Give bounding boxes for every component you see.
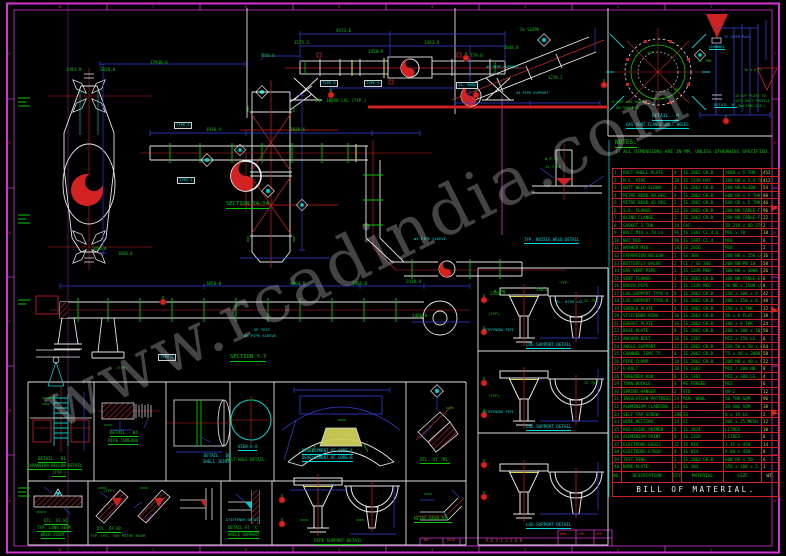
- bom-cell: 6: [673, 305, 682, 312]
- bom-row: 10NUT M1696IS 1367 CL 4M166: [613, 237, 779, 245]
- bom-cell: IS 2062 GR.B: [682, 327, 724, 334]
- bom-cell: S.O. FLANGE: [622, 207, 673, 214]
- bom-cell: 14: [673, 222, 682, 229]
- ann-top_assembly: 4573.6: [336, 29, 351, 33]
- ann-flange_detail: 45°: [674, 88, 681, 92]
- detail-b6-joint: [166, 400, 232, 452]
- bom-cell: IS 2062 GR.B: [682, 207, 724, 214]
- zone-label: 2: [617, 5, 619, 9]
- bom-cell: IS 2062 GR.B: [682, 290, 724, 297]
- bom-cell: IS 1367: [682, 365, 724, 372]
- ann-detail_cells_row2: DTL. OF W2: [97, 527, 121, 533]
- detail-b4-threads: [98, 403, 160, 432]
- bom-cell: 8: [673, 290, 682, 297]
- bom-cell: IS 2062 GR.B: [682, 320, 724, 327]
- bom-cell: 16: [673, 335, 682, 342]
- ann-lug_supports: ø THK: [494, 289, 505, 293]
- bom-cell: IS 1239 MED: [682, 267, 724, 274]
- bom-cell: INSULATION MATTRESS: [622, 395, 673, 402]
- ann-detail_cells_row2: DETAIL AT 'X': [228, 526, 259, 532]
- bom-cell: 6: [673, 184, 682, 191]
- bom-row: 6S.O. FLANGE12IS 2062 GR.B200 NB TABLE-F…: [613, 207, 779, 215]
- ann-sloped_pipe: EL. 9800: [456, 82, 478, 89]
- ann-top_assembly: EL. 10058 LVL (TYP.): [316, 99, 366, 103]
- bom-cell: IS 1367 CL 4.6: [682, 229, 724, 236]
- bom-row: 24ANGLE SUPPORT12IS 2062 GR.BISA 50 x 50…: [613, 343, 779, 351]
- bom-cell: IS 2339: [682, 433, 724, 440]
- bom-cell: 200 NB x 150 LG: [724, 252, 762, 259]
- bom-cell: 32: [762, 305, 779, 312]
- bom-cell: 96: [762, 207, 779, 214]
- bom-row: 40NAME PLATE1SS 304150 x 100 x 21: [613, 463, 779, 471]
- ann-sloped_pipe: 2% SLOPE: [520, 28, 539, 32]
- ann-flange_detail: 8 NOS ø34 HOLES: [612, 100, 646, 104]
- ann-vent_figure: IS SHIM RAIL: [724, 35, 751, 39]
- bom-cell: 42: [762, 290, 779, 297]
- bom-cell: 24: [673, 403, 682, 410]
- bom-cell: 12: [673, 441, 682, 448]
- ann-detail_cells_row1: (TYP.): [52, 471, 66, 477]
- bom-cell: ELECTRODE E6013: [622, 441, 673, 448]
- ann-nozzle_detail: W.P 2½: [545, 157, 559, 161]
- bom-cell: 96: [673, 237, 682, 244]
- ann-vessel_area: 3038.6: [290, 128, 305, 132]
- bom-cell: 21: [613, 320, 622, 327]
- bom-cell: BUTTERFLY VALVE: [622, 260, 673, 267]
- bom-cell: 27: [613, 365, 622, 372]
- bom-cell: 39: [613, 456, 622, 463]
- bom-cell: M12 x 150 LG: [724, 335, 762, 342]
- bom-row: 5MITRE BEND 45 DEG2IS 2062 GR.B600 OD x …: [613, 199, 779, 207]
- bom-cell: 4: [673, 192, 682, 199]
- ann-sloped_pipe: 1219.2: [548, 76, 562, 80]
- bom-cell: 7: [613, 214, 622, 221]
- zone-label: 4: [431, 548, 433, 552]
- bom-cell: CAF: [682, 222, 724, 229]
- ann-detail_cells_row1: BOLT HOLE DETAIL: [226, 458, 265, 462]
- ann-flange_detail: DETAIL - M: [652, 115, 679, 121]
- zone-label: F: [9, 52, 11, 56]
- ann-vent_figure: 22 THK: [698, 59, 712, 63]
- ann-revision_strip: R E V I S I O N: [486, 539, 522, 543]
- branch-duct: [234, 80, 338, 268]
- bom-cell: 12: [762, 418, 779, 425]
- zone-label: C: [9, 320, 11, 324]
- lower-duct-run: [50, 283, 470, 358]
- bom-cell: IS 2016: [682, 244, 724, 251]
- bom-cell: 40: [613, 463, 622, 471]
- bom-cell: 5: [613, 199, 622, 206]
- bom-cell: IS 2062 GR.B: [682, 199, 724, 206]
- bom-cell: 1: [613, 169, 622, 176]
- bom-cell: 31: [613, 395, 622, 402]
- ann-detail_cells_row2: ANGLE SUPPORT: [228, 533, 259, 539]
- bom-row: 12EXPANSION BELLOW2SS 304200 NB x 150 LG…: [613, 252, 779, 260]
- ann-vent_figure: DETAIL 'K': [714, 103, 737, 108]
- bom-cell: MIN. WOOL: [682, 395, 724, 402]
- bom-cell: 8: [673, 426, 682, 433]
- bom-row: 31INSULATION MATTRESS24MIN. WOOL50 THK S…: [613, 395, 779, 403]
- zone-label: 8: [59, 5, 61, 9]
- zone-label: 7: [152, 548, 154, 552]
- bom-cell: LITRES: [724, 433, 762, 440]
- bom-cell: 24: [673, 395, 682, 402]
- bom-cell: STD: [682, 388, 724, 395]
- ann-lug_supports: LUG SUPPORT DETAIL: [526, 523, 571, 529]
- bom-cell: GASKET 3 THK: [622, 222, 673, 229]
- bom-cell: U-BOLT: [622, 365, 673, 372]
- bom-row: 3BUTT WELD ELBOW6IS 2062 GR.B200 NB R=30…: [613, 184, 779, 192]
- ann-vent_figure: 50 x 6 FL: [744, 69, 762, 72]
- bom-cell: 6: [762, 380, 779, 387]
- bom-row: 22BASE PLATE8IS 2062 GR.B200 x 200 x 105…: [613, 327, 779, 335]
- bom-cell: 96: [673, 229, 682, 236]
- ann-duct_runs: 748.0: [536, 288, 548, 292]
- bom-cell: 452: [762, 169, 779, 176]
- ann-detail_cells_row2: WELD JOINT: [41, 533, 65, 539]
- bom-cell: DRAIN PIPE: [622, 282, 673, 289]
- bom-cell: 6: [762, 275, 779, 282]
- zone-label: 5: [338, 5, 340, 9]
- bom-cell: SPRING HANGER: [622, 388, 673, 395]
- bom-row: 32ALUMINIUM CLADDING24AL24 SWG SQM38: [613, 403, 779, 411]
- ann-detail_cells_row1: EXPANSION BELLOW DETAIL: [27, 464, 82, 470]
- ann-flange_detail: ON 508 PCD: [616, 106, 639, 110]
- bom-cell: 100 NB x 3000 LG: [724, 267, 762, 274]
- bom-cell: 11: [613, 244, 622, 251]
- bom-cell: 50: [762, 327, 779, 334]
- bom-cell: VENT FLANGE: [622, 275, 673, 282]
- ann-lug_supports: LUG SUPPORT DETAIL: [526, 343, 571, 349]
- bom-cell: SS 304: [682, 252, 724, 259]
- ann-lug_supports: STIFFENING PIPE: [483, 411, 514, 414]
- bom-cell: 26: [613, 358, 622, 365]
- pipe-support-cell: [279, 474, 400, 536]
- zone-label: 4: [431, 5, 433, 9]
- ann-detail_cells_row1: PIPE THREADS: [108, 439, 138, 445]
- bom-row: 30SPRING HANGER2STDVN-212: [613, 388, 779, 396]
- bom-cell: 16: [613, 282, 622, 289]
- ann-flange_detail: 45°: [647, 51, 654, 55]
- bom-header-cell: SIZE: [724, 472, 762, 482]
- bom-cell: 6: [673, 448, 682, 455]
- bom-cell: ANCHOR BOLT: [622, 335, 673, 342]
- bom-cell: EXPANSION BELLOW: [622, 252, 673, 259]
- bom-cell: 16: [762, 252, 779, 259]
- bom-cell: IS 2062 GR.B: [682, 214, 724, 221]
- bom-cell: 22: [762, 214, 779, 221]
- bom-row: 34WIRE NETTING24GI20G x 25 MESH12: [613, 418, 779, 426]
- bom-cell: 54: [762, 184, 779, 191]
- bom-cell: 2: [673, 456, 682, 463]
- bom-cell: AL: [682, 403, 724, 410]
- bom-row: 28THREADED ROD8IS 1367M12 x 300 LG4: [613, 373, 779, 381]
- bom-cell: 600 OD x 50: [724, 456, 762, 463]
- bom-cell: IS 2062 GR.B: [682, 358, 724, 365]
- zone-label: A: [774, 499, 776, 503]
- ann-duct_runs: 1905.0: [352, 282, 367, 286]
- bom-cell: 8: [762, 433, 779, 440]
- bom-cell: 200 NB x 40 x 6: [724, 358, 762, 365]
- ann-nozzle_detail: TYP. NOZZLE WELD DETAIL: [524, 238, 579, 244]
- bom-cell: 100 NB TABLE-E: [724, 275, 762, 282]
- bom-cell: 8: [762, 282, 779, 289]
- bom-cell: IS 1239 MED: [682, 282, 724, 289]
- bom-cell: 14: [613, 267, 622, 274]
- bom-cell: RED OXIDE PRIMER: [622, 426, 673, 433]
- bom-row: 14GAS VENT PIPE1IS 1239 MED100 NB x 3000…: [613, 267, 779, 275]
- ann-detail_cells_row1: DETAIL - B1: [38, 457, 66, 463]
- bom-cell: 200 NB x 5.4 THK: [724, 177, 762, 184]
- bom-cell: 1: [673, 463, 682, 471]
- bom-cell: 2: [673, 388, 682, 395]
- bom-cell: 2: [673, 260, 682, 267]
- bom-cell: SS 304: [682, 463, 724, 471]
- bom-table: 1DUCT SHELL PLATE4IS 2062 GR.B1600 x 5 T…: [612, 168, 780, 497]
- bom-row: 23ANCHOR BOLT16IS 1367M12 x 150 LG6: [613, 335, 779, 343]
- bom-cell: 50 x 6 FLAT: [724, 312, 762, 319]
- ann-detail_cells_row2: STIFFENER DETAIL: [226, 519, 261, 523]
- bom-cell: 29: [613, 380, 622, 387]
- ann-vent_figure: SUIT DUCT PROFILE: [735, 100, 770, 103]
- bom-row: 9BOLT M16 x 70 LG96IS 1367 CL 4.6M16 x 7…: [613, 229, 779, 237]
- bom-cell: BLIND FLANGE: [622, 214, 673, 221]
- left-lower-misc: [36, 296, 80, 386]
- bom-cell: 8: [673, 327, 682, 334]
- bom-cell: MS FORGED: [682, 380, 724, 387]
- ann-vessel_area: 2030.8: [100, 68, 115, 72]
- bom-cell: 1600 x 5 THK: [724, 169, 762, 176]
- ann-duct_runs: 4064.8: [290, 282, 305, 286]
- bom-cell: 15: [613, 275, 622, 282]
- zone-label: 1: [710, 548, 712, 552]
- bom-cell: WASHER M16: [622, 244, 673, 251]
- ann-duct_runs: 3050.0: [206, 282, 221, 286]
- bom-row: 19SADDLE PLATE6IS 2062 GR.B250 x 6 THK32: [613, 305, 779, 313]
- bom-row: 29TURN BUCKLE4MS FORGEDM126: [613, 380, 779, 388]
- ann-lug_supports: STIFFENING PIPE: [483, 329, 514, 332]
- bom-row: 26PIPE CLAMP10IS 2062 GR.B200 NB x 40 x …: [613, 358, 779, 366]
- ann-sections: SECTION Y-Y: [230, 355, 266, 362]
- bom-rows: 1DUCT SHELL PLATE4IS 2062 GR.B1600 x 5 T…: [612, 168, 780, 472]
- zone-label: E: [9, 141, 11, 145]
- bom-cell: M12 x 300 LG: [724, 373, 762, 380]
- zone-label: B: [774, 409, 776, 413]
- ann-vessel_area: 1930.4: [206, 128, 221, 132]
- bom-cell: 4: [673, 169, 682, 176]
- ann-revision_strip: NO.: [424, 539, 430, 542]
- ann-detail_cells_row2: (TYP): [103, 489, 114, 493]
- ann-vessel_area: TYPE 1: [174, 122, 192, 129]
- ann-detail_cells_row2: TYP. LONG.SEAM: [37, 526, 71, 532]
- bom-header-row: NO.DESCRIPTIONQTYMATERIALSIZEWT.: [612, 472, 780, 483]
- bom-cell: IS 1367 CL 4: [682, 237, 724, 244]
- zone-label: A: [9, 499, 11, 503]
- bom-cell: 10: [762, 426, 779, 433]
- ann-top_assembly: 1493.9: [424, 41, 439, 45]
- bom-cell: M12 / 200 NB: [724, 365, 762, 372]
- bom-cell: 75 x 40 x 2000: [724, 350, 762, 357]
- bom-cell: 12: [673, 207, 682, 214]
- bom-cell: 20G x 25 MESH: [724, 418, 762, 425]
- bom-cell: 100 x 8 THK: [724, 320, 762, 327]
- zone-label: 1: [710, 5, 712, 9]
- zone-label: F: [774, 52, 776, 56]
- bom-cell: 3: [613, 184, 622, 191]
- cad-sheet: www.rcadindia.com 1DUCT SHELL PLATE4IS 2…: [0, 0, 786, 556]
- bom-row: 27U-BOLT10IS 1367M12 / 200 NB8: [613, 365, 779, 373]
- bom-cell: 96: [762, 395, 779, 402]
- bom-cell: 25: [613, 350, 622, 357]
- lug-support-boxes: [481, 284, 604, 522]
- bom-cell: 4: [673, 350, 682, 357]
- zone-label: 6: [245, 548, 247, 552]
- bom-cell: 2: [762, 411, 779, 418]
- bom-cell: 6: [613, 207, 622, 214]
- bom-row: 35RED OXIDE PRIMER8IS 2074LITRES10: [613, 426, 779, 434]
- bom-cell: IS 2062 GR.B: [682, 169, 724, 176]
- bom-cell: 34: [613, 418, 622, 425]
- zone-label: 8: [59, 548, 61, 552]
- bom-cell: CI / SS 304: [682, 260, 724, 267]
- ann-revision_strip: DATE: [447, 539, 455, 542]
- bom-cell: 10: [673, 312, 682, 319]
- zone-label: 5: [338, 548, 340, 552]
- ann-detail_cells_row1: DETAIL - B4: [110, 431, 138, 437]
- bom-header-cell: QTY: [673, 472, 682, 482]
- ann-lug_supports: (TYP): [488, 312, 499, 316]
- bom-cell: ALUMINIUM PAINT: [622, 433, 673, 440]
- ann-detail_cells_row1: VIEW X-X: [238, 445, 257, 451]
- bom-row: 20STIFFENER RING10IS 2062 GR.B50 x 6 FLA…: [613, 312, 779, 320]
- bom-cell: BASE PLATE: [622, 327, 673, 334]
- bom-cell: GAS VENT PIPE: [622, 267, 673, 274]
- ann-detail_cells_row2: TYP. DTL. FOR MITRE SEAM: [90, 534, 145, 538]
- bom-cell: NUT M16: [622, 237, 673, 244]
- bom-cell: IS 814: [682, 448, 724, 455]
- bom-cell: IS 2062 GR.B: [682, 350, 724, 357]
- ann-detail_cells_row1: DTL. AT 'M1': [420, 458, 450, 464]
- ann-top_assembly: 779.8: [470, 54, 483, 58]
- bom-row: 21GUSSET PLATE16IS 2062 GR.B100 x 8 THK2…: [613, 320, 779, 328]
- bom-cell: 1: [673, 275, 682, 282]
- bom-cell: DUCT SHELL PLATE: [622, 169, 673, 176]
- detail-b1-bellow: [30, 386, 92, 452]
- zone-label: B: [9, 409, 11, 413]
- bom-header-cell: DESCRIPTION: [622, 472, 673, 482]
- ann-notes: NOTES:: [615, 140, 637, 148]
- bom-cell: GI: [682, 418, 724, 425]
- bom-cell: 24 SWG SQM: [724, 403, 762, 410]
- bom-cell: 2: [673, 214, 682, 221]
- bom-cell: 200 NB TABLE-F: [724, 207, 762, 214]
- bom-cell: 200 x 200 x 10: [724, 327, 762, 334]
- ann-vessel_area: TYPE 2: [158, 354, 176, 361]
- bom-cell: 28: [613, 373, 622, 380]
- bom-cell: 10: [673, 365, 682, 372]
- bom-cell: 150 x 100 x 2: [724, 463, 762, 471]
- zone-label: 2: [617, 548, 619, 552]
- bom-cell: 1: [762, 463, 779, 471]
- ann-lug_supports: IS 75C: [584, 299, 598, 303]
- bom-cell: ANGLE SUPPORT: [622, 343, 673, 350]
- bom-cell: IS 2062 GR.B: [682, 343, 724, 350]
- bom-cell: IS 1367: [682, 335, 724, 342]
- ann-duct_runs: (TYP): [116, 366, 127, 370]
- ann-top_assembly: 1450.9: [368, 50, 383, 54]
- zone-label: D: [774, 231, 776, 235]
- bom-cell: 6: [673, 433, 682, 440]
- bom-cell: 4.00 x 450: [724, 448, 762, 455]
- bom-row: 4MITRE BEND 90 DEG4IS 2062 GR.B600 OD x …: [613, 192, 779, 200]
- ann-sections: SECTION Y4-Y4: [226, 202, 269, 209]
- bom-row: 2M.S. PIPE18IS 1239 HVY200 NB x 5.4 THK4…: [613, 177, 779, 185]
- bom-cell: 23: [613, 335, 622, 342]
- ann-vent_figure: 43 R/F PLATE TO: [735, 95, 766, 98]
- bom-cell: NAME PLATE: [622, 463, 673, 471]
- bom-cell: ISA 50 x 50 x 6: [724, 343, 762, 350]
- bom-cell: GUSSET PLATE: [622, 320, 673, 327]
- bom-row: 18LUG SUPPORT TYPE-B6IS 2062 GR.B200 x 1…: [613, 297, 779, 305]
- bom-cell: 50 THK SQM: [724, 395, 762, 402]
- bom-cell: ALUMINIUM CLADDING: [622, 403, 673, 410]
- bom-cell: 6: [673, 297, 682, 304]
- ann-vent_figure: CHANNEL: [709, 45, 725, 50]
- bom-cell: 64: [762, 343, 779, 350]
- bom-cell: ID 219 x OD 279: [724, 222, 762, 229]
- bom-cell: 2: [673, 199, 682, 206]
- bom-cell: VN-2: [724, 388, 762, 395]
- bom-cell: 4: [673, 380, 682, 387]
- bom-cell: 35: [613, 426, 622, 433]
- bom-cell: 46: [762, 199, 779, 206]
- bom-cell: 12: [762, 388, 779, 395]
- ann-duct_runs: SP TEST: [254, 328, 270, 332]
- bom-cell: 4: [613, 192, 622, 199]
- bom-row: 8GASKET 3 THK14CAFID 219 x OD 2792: [613, 222, 779, 230]
- bom-cell: 250 x 6 THK: [724, 305, 762, 312]
- bom-row: 36ALUMINIUM PAINT6IS 2339LITRES8: [613, 433, 779, 441]
- bom-row: 37ELECTRODE E601312IS 8143.15 x 45014: [613, 441, 779, 449]
- bom-cell: MITRE BEND 90 DEG: [622, 192, 673, 199]
- zone-label: 6: [245, 5, 247, 9]
- bom-cell: 32: [613, 403, 622, 410]
- ann-revision_strip: CHK.: [578, 533, 586, 536]
- bom-cell: 18: [673, 177, 682, 184]
- bom-cell: ELECTRODE E7018: [622, 448, 673, 455]
- bom-header-cell: NO.: [613, 472, 622, 482]
- ann-revision_strip: DRN.: [560, 533, 568, 536]
- bom-cell: M.S. PIPE: [622, 177, 673, 184]
- ann-vessel_area: 17938.6: [150, 61, 168, 65]
- bom-cell: IS 2062 GR.B: [682, 192, 724, 199]
- bom-cell: 200 NB PN 10: [724, 260, 762, 267]
- bom-cell: 19: [613, 305, 622, 312]
- bom-cell: 13: [613, 260, 622, 267]
- bom-cell: 48: [762, 297, 779, 304]
- weld-w2: [96, 488, 212, 523]
- bom-cell: 8 x 19 LG: [724, 411, 762, 418]
- ann-top_assembly: TYPE 3: [364, 80, 382, 87]
- zone-label: 3: [524, 548, 526, 552]
- view-xx-circle: [227, 396, 275, 444]
- mitre-detail-1: [416, 385, 458, 452]
- bom-cell: PIPE CLAMP: [622, 358, 673, 365]
- bom-cell: LUG SUPPORT TYPE-B: [622, 297, 673, 304]
- ann-nozzle_detail: 12 T R6: [545, 165, 561, 169]
- bom-cell: IS 2062 GR.B: [682, 312, 724, 319]
- nozzle-weld-detail: [532, 144, 604, 200]
